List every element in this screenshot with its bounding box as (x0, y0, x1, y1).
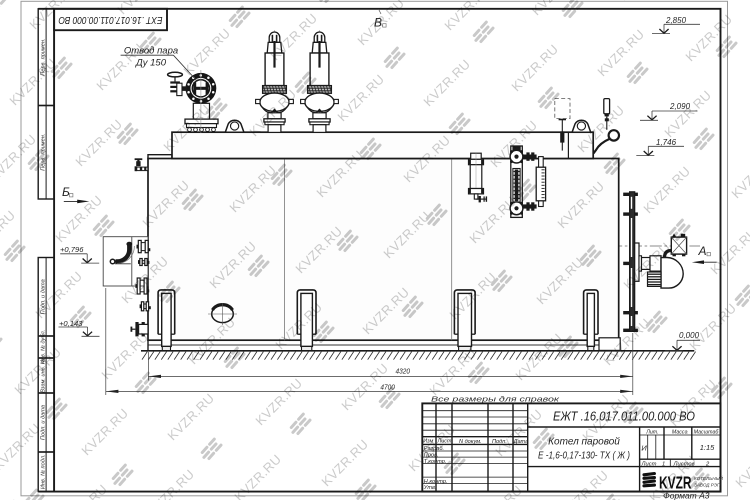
svg-text:1,746: 1,746 (656, 138, 677, 147)
svg-text:4700: 4700 (380, 382, 395, 391)
svg-text:Лит.: Лит. (645, 430, 658, 436)
svg-text:Инв. № подл.: Инв. № подл. (40, 454, 46, 489)
svg-text:+0,796: +0,796 (60, 245, 84, 254)
svg-text:4320: 4320 (396, 367, 411, 376)
svg-text:Утв.: Утв. (423, 485, 437, 491)
svg-text:Все размеры для справок: Все размеры для справок (431, 396, 560, 404)
svg-text:2,850: 2,850 (665, 16, 687, 25)
svg-text:Ду 150: Ду 150 (135, 57, 167, 68)
svg-text:А: А (698, 244, 707, 258)
svg-text:Масса: Масса (672, 430, 688, 436)
svg-text:Лист: Лист (641, 461, 657, 467)
svg-text:Н.контр.: Н.контр. (424, 479, 448, 485)
svg-text:Е -1,6-0,17-130- ТХ ( Ж ): Е -1,6-0,17-130- ТХ ( Ж ) (538, 451, 630, 462)
svg-text:Подп. и дата: Подп. и дата (40, 405, 46, 440)
svg-text:Масштаб: Масштаб (694, 430, 720, 436)
svg-text:ЕХТ .16.017.011.00.000 ВО: ЕХТ .16.017.011.00.000 ВО (59, 14, 163, 26)
svg-text:N докум.: N докум. (459, 439, 482, 445)
svg-text:Б: Б (62, 185, 70, 199)
svg-text:1:15: 1:15 (700, 443, 715, 452)
svg-text:1: 1 (662, 461, 665, 467)
svg-text:И: И (641, 444, 647, 453)
